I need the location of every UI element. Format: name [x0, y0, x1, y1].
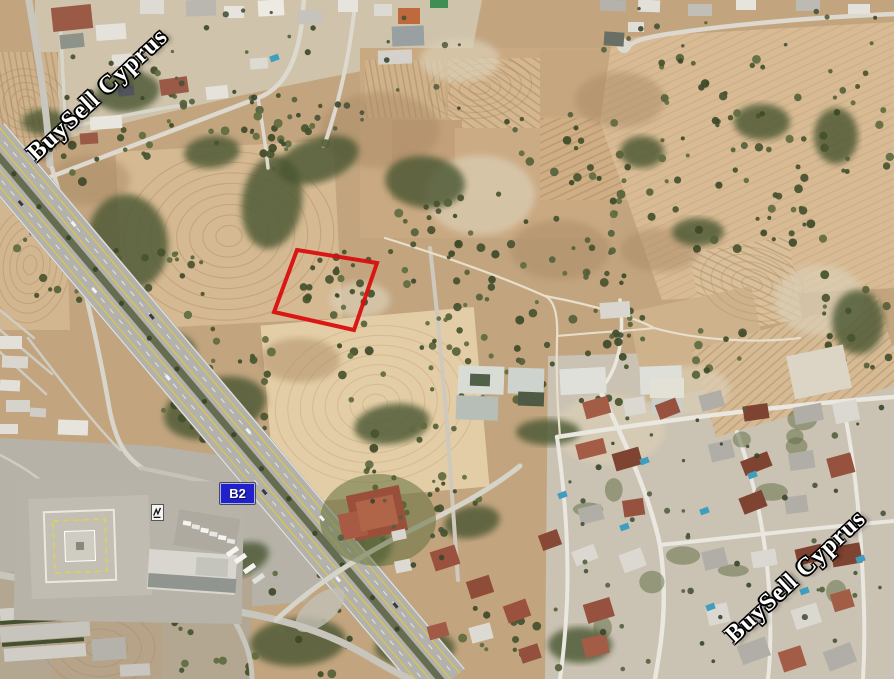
road-label-b2: B2 — [220, 483, 255, 504]
aerial-map-view[interactable]: BuySell Cyprus BuySell Cyprus B2 — [0, 0, 894, 679]
aerial-imagery — [0, 0, 894, 679]
ground-marker-icon — [151, 504, 164, 521]
